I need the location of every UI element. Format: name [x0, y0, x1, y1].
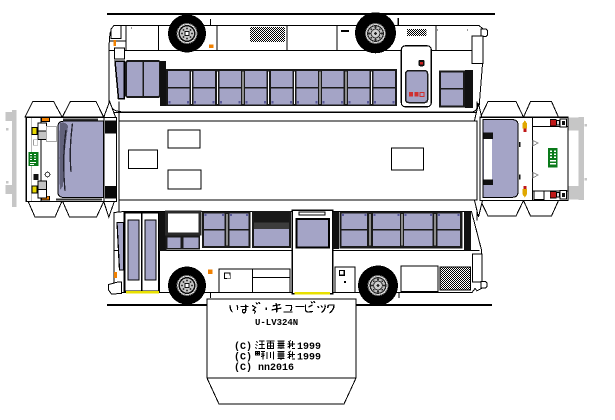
svg-text:1999: 1999 — [297, 342, 321, 353]
svg-text:U-LV324N: U-LV324N — [255, 318, 298, 328]
svg-text:(C): (C) — [234, 352, 252, 364]
svg-text:(C) nn2016: (C) nn2016 — [234, 362, 294, 374]
svg-text:(C): (C) — [234, 341, 252, 353]
svg-text:1999: 1999 — [297, 353, 321, 364]
